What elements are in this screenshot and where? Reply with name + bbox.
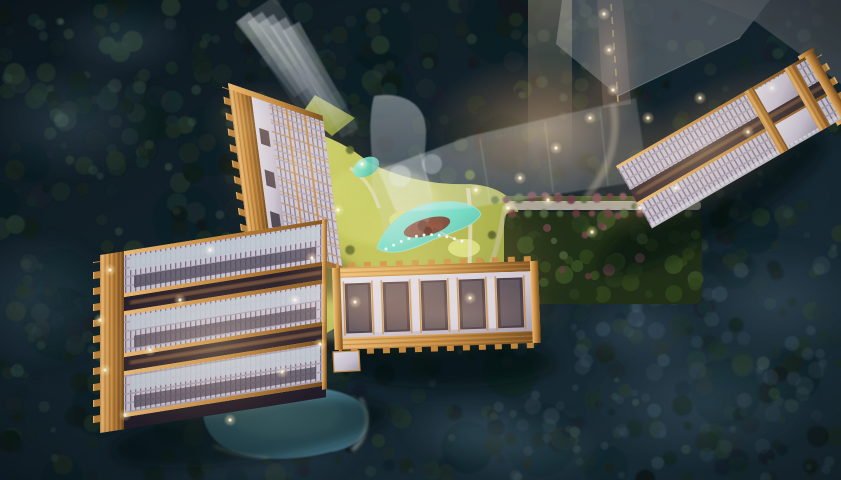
scene-svg — [0, 0, 841, 480]
aerial-night-render — [0, 0, 841, 480]
vignette — [0, 0, 841, 480]
